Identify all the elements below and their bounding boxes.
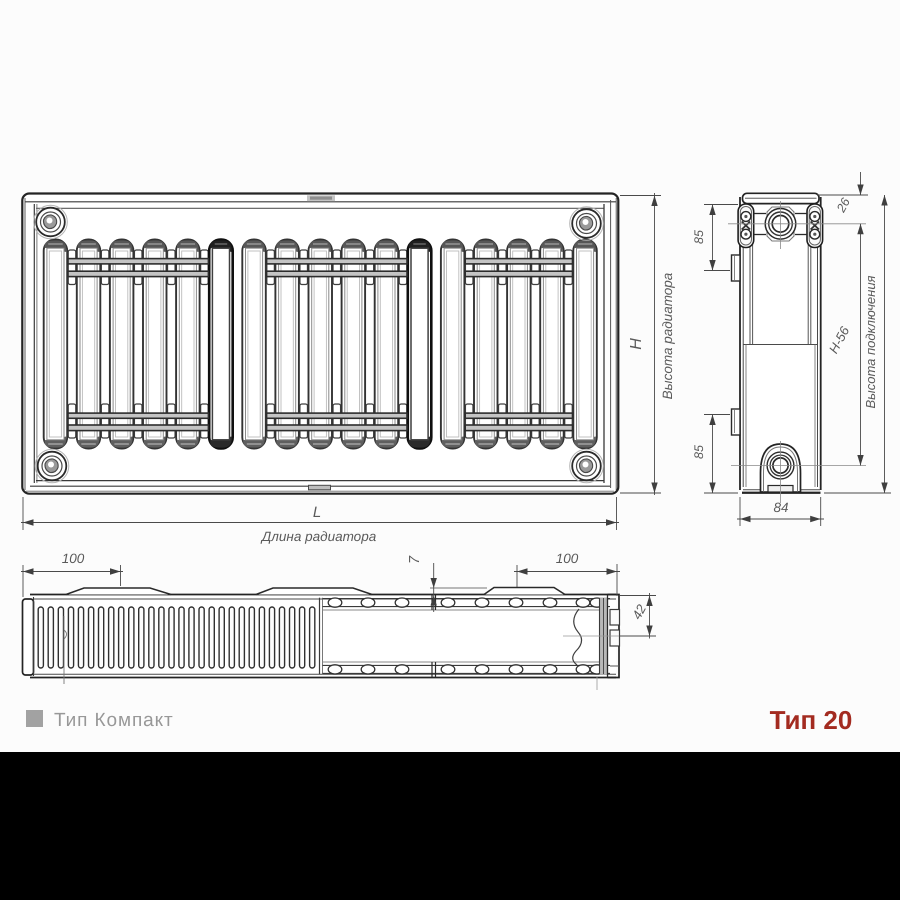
svg-text:Высота подключения: Высота подключения xyxy=(863,275,878,408)
svg-text:84: 84 xyxy=(773,500,788,515)
svg-text:100: 100 xyxy=(556,551,579,566)
svg-text:100: 100 xyxy=(62,551,85,566)
svg-text:85: 85 xyxy=(692,230,706,244)
svg-text:Длина радиатора: Длина радиатора xyxy=(260,529,377,544)
svg-text:H: H xyxy=(628,338,645,350)
svg-text:Тип 20: Тип 20 xyxy=(770,705,853,735)
svg-text:Тип Компакт: Тип Компакт xyxy=(54,710,174,731)
svg-text:Высота радиатора: Высота радиатора xyxy=(660,272,675,399)
svg-text:L: L xyxy=(313,504,321,521)
svg-text:7: 7 xyxy=(407,555,423,564)
svg-text:85: 85 xyxy=(692,445,706,459)
